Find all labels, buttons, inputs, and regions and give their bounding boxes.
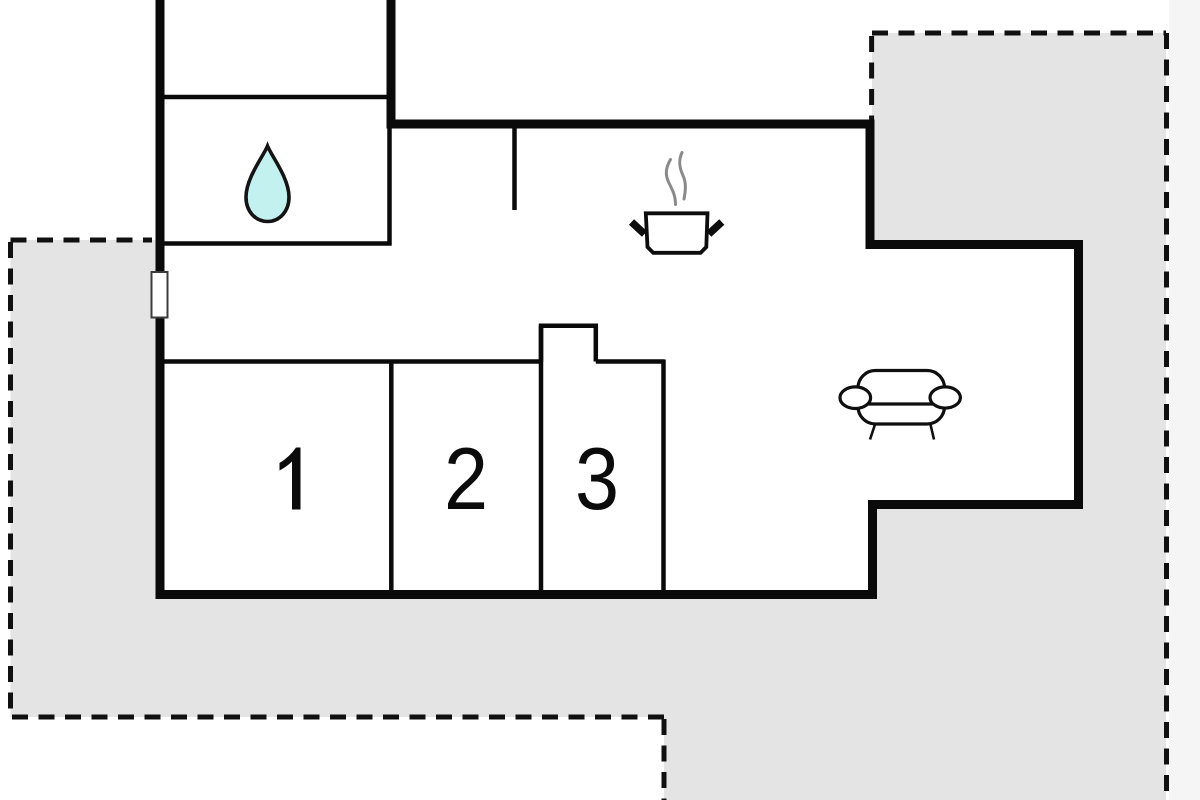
svg-text:2: 2 — [444, 429, 488, 528]
svg-text:3: 3 — [575, 429, 619, 528]
